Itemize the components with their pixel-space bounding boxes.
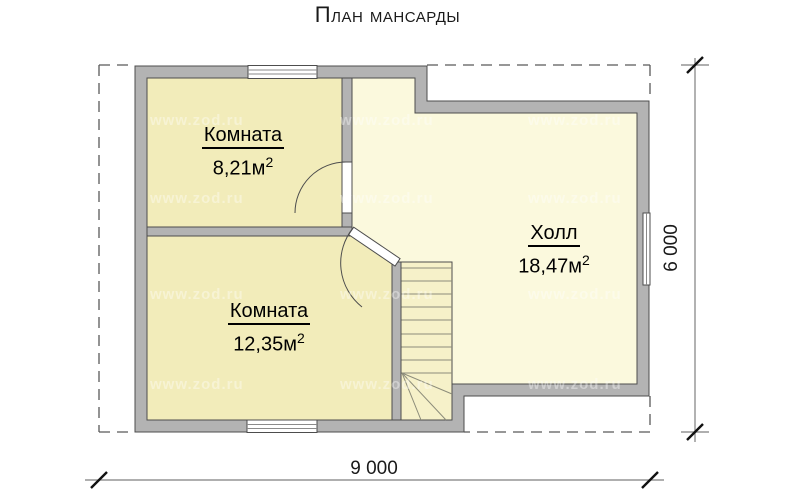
hall-name: Холл bbox=[528, 222, 579, 247]
dimension-right-label: 6 000 bbox=[661, 224, 682, 272]
room2-area-sup: 2 bbox=[297, 330, 305, 346]
room2-area: 12,35м2 bbox=[186, 327, 352, 356]
window-bottom bbox=[247, 420, 317, 433]
room2-area-value: 12,35м bbox=[233, 334, 297, 356]
dimension-right: 6 000 bbox=[661, 57, 709, 442]
room1-area-value: 8,21м bbox=[213, 158, 266, 180]
dimension-bottom-label: 9 000 bbox=[350, 458, 398, 479]
floor-plan-page: План мансарды bbox=[0, 0, 795, 496]
room1-area-sup: 2 bbox=[265, 154, 273, 170]
hall-area-sup: 2 bbox=[582, 252, 590, 268]
room2-name: Комната bbox=[228, 300, 310, 325]
room1-area: 8,21м2 bbox=[160, 151, 326, 180]
floor-plan-drawing: 9 000 6 000 bbox=[0, 0, 795, 496]
hall-label: Холл 18,47м2 bbox=[471, 222, 637, 278]
window-right bbox=[643, 213, 650, 285]
window-top bbox=[248, 66, 317, 79]
room2-label: Комната 12,35м2 bbox=[186, 300, 352, 356]
hall-area-value: 18,47м bbox=[518, 256, 582, 278]
room1-name: Комната bbox=[202, 124, 284, 149]
staircase bbox=[401, 262, 452, 420]
room1-label: Комната 8,21м2 bbox=[160, 124, 326, 180]
hall-area: 18,47м2 bbox=[471, 249, 637, 278]
dimension-bottom: 9 000 bbox=[85, 458, 664, 488]
